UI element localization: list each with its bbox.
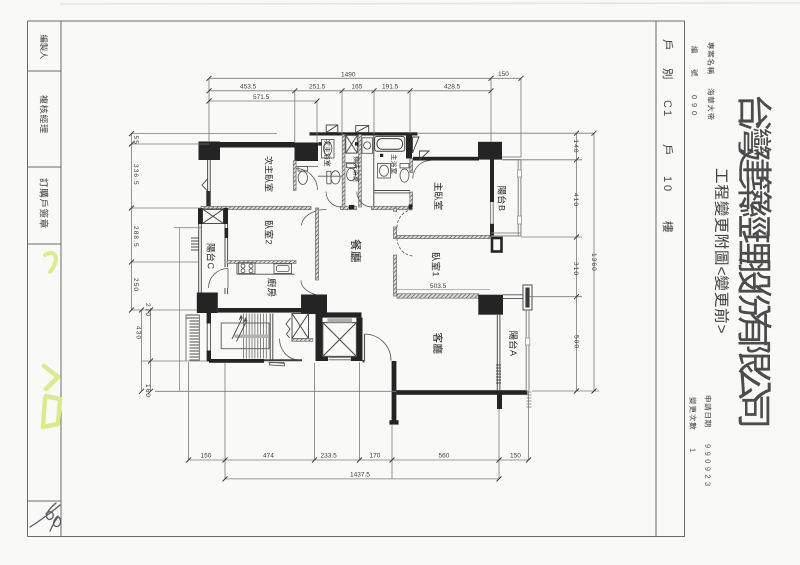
svg-text:453.5: 453.5 [240,84,257,91]
svg-text:251.5: 251.5 [309,84,326,91]
svg-text:150: 150 [498,71,509,78]
svg-text:500: 500 [573,335,580,349]
svg-text:233.5: 233.5 [321,453,338,460]
svg-text:250: 250 [132,278,139,292]
svg-text:140: 140 [572,140,579,154]
svg-text:288.5: 288.5 [132,226,139,248]
svg-text:270: 270 [144,303,151,317]
svg-text:474: 474 [263,453,274,460]
svg-text:165: 165 [352,84,363,91]
svg-text:428.5: 428.5 [444,84,461,91]
svg-text:310: 310 [572,262,579,276]
svg-text:160: 160 [144,384,151,398]
svg-text:1490: 1490 [341,72,356,79]
svg-text:170: 170 [370,453,381,460]
svg-text:571.5: 571.5 [253,94,270,101]
svg-text:560: 560 [439,453,450,460]
svg-text:55: 55 [132,136,139,145]
svg-text:1437.5: 1437.5 [350,472,370,479]
svg-text:430: 430 [135,326,142,340]
svg-text:191.5: 191.5 [382,84,399,91]
svg-text:150: 150 [201,453,212,460]
svg-text:410: 410 [572,193,579,207]
svg-text:1360: 1360 [590,253,597,272]
svg-text:336.5: 336.5 [132,164,139,186]
svg-text:150: 150 [510,453,521,460]
